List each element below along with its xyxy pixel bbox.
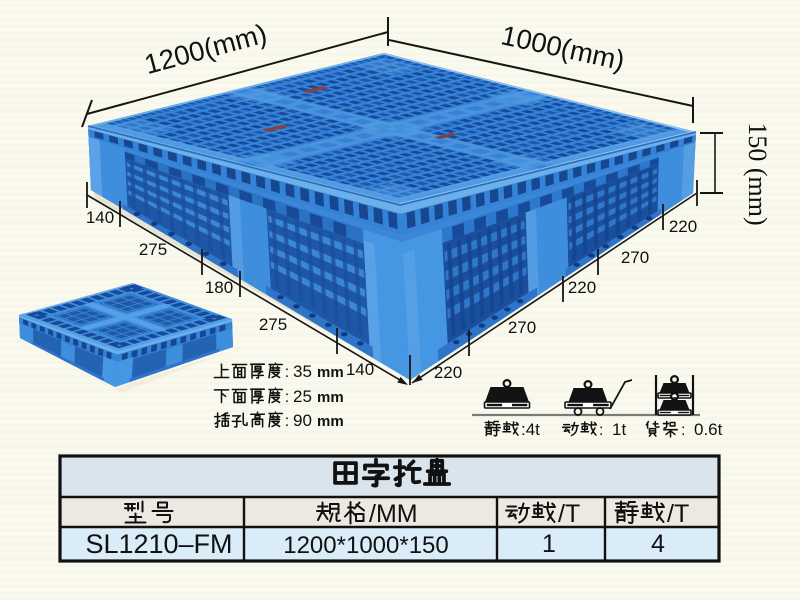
svg-text:270: 270 [621, 248, 649, 267]
svg-text:140: 140 [346, 360, 374, 379]
svg-text:mm: mm [317, 389, 344, 406]
svg-text:mm: mm [317, 364, 344, 381]
svg-text:150 (mm): 150 (mm) [743, 122, 772, 225]
svg-text:275: 275 [139, 240, 167, 259]
svg-text:90: 90 [293, 411, 312, 430]
svg-text:/T: /T [558, 500, 580, 528]
svg-text:/MM: /MM [369, 500, 418, 528]
svg-text:220: 220 [568, 278, 596, 297]
svg-text:140: 140 [86, 208, 114, 227]
svg-text:mm: mm [317, 413, 344, 430]
svg-text:220: 220 [434, 363, 462, 382]
svg-text:25: 25 [293, 387, 312, 406]
svg-text:275: 275 [259, 315, 287, 334]
svg-text:270: 270 [508, 318, 536, 337]
svg-text:1t: 1t [612, 420, 626, 439]
svg-text:220: 220 [669, 217, 697, 236]
svg-text:1200*1000*150: 1200*1000*150 [283, 532, 449, 559]
svg-text:SL1210–FM: SL1210–FM [85, 529, 232, 559]
svg-text:4: 4 [651, 530, 665, 558]
svg-text::: : [681, 422, 685, 439]
svg-text:35: 35 [293, 362, 312, 381]
svg-text::4t: :4t [521, 420, 540, 439]
svg-text::: : [285, 389, 289, 406]
svg-text::: : [285, 413, 289, 430]
svg-text:/T: /T [667, 500, 689, 528]
svg-text::: : [599, 422, 603, 439]
svg-text:180: 180 [205, 278, 233, 297]
svg-text:1: 1 [542, 530, 556, 558]
svg-text:0.6t: 0.6t [694, 420, 723, 439]
svg-text:1200(mm): 1200(mm) [141, 18, 270, 80]
svg-text::: : [285, 364, 289, 381]
